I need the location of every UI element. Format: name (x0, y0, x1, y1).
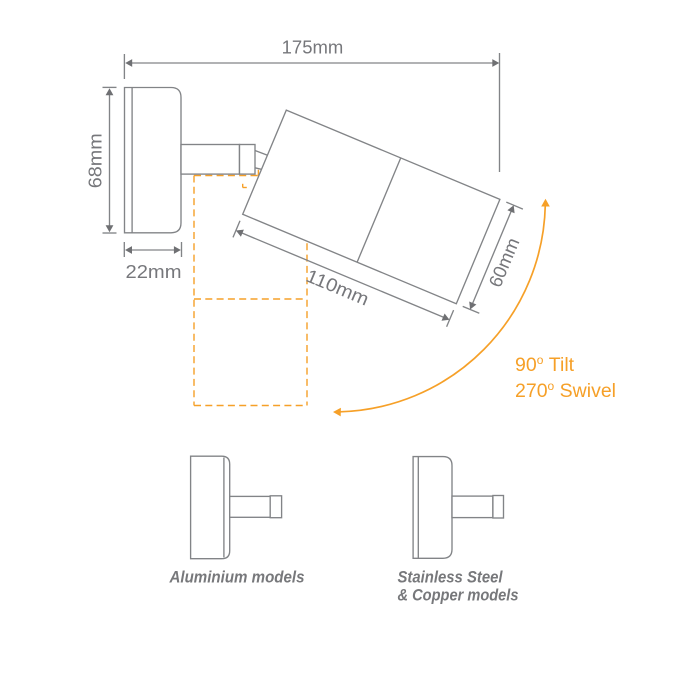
svg-text:175mm: 175mm (282, 37, 344, 58)
svg-text:68mm: 68mm (85, 133, 106, 188)
svg-text:22mm: 22mm (126, 261, 182, 282)
svg-text:Aluminium models: Aluminium models (169, 568, 305, 587)
svg-text:90o Tilt: 90o Tilt (515, 353, 575, 376)
svg-text:Stainless Steel: Stainless Steel (398, 568, 504, 587)
svg-text:270o Swivel: 270o Swivel (515, 379, 616, 402)
svg-text:& Copper models: & Copper models (398, 585, 519, 604)
svg-text:110mm: 110mm (303, 265, 372, 310)
